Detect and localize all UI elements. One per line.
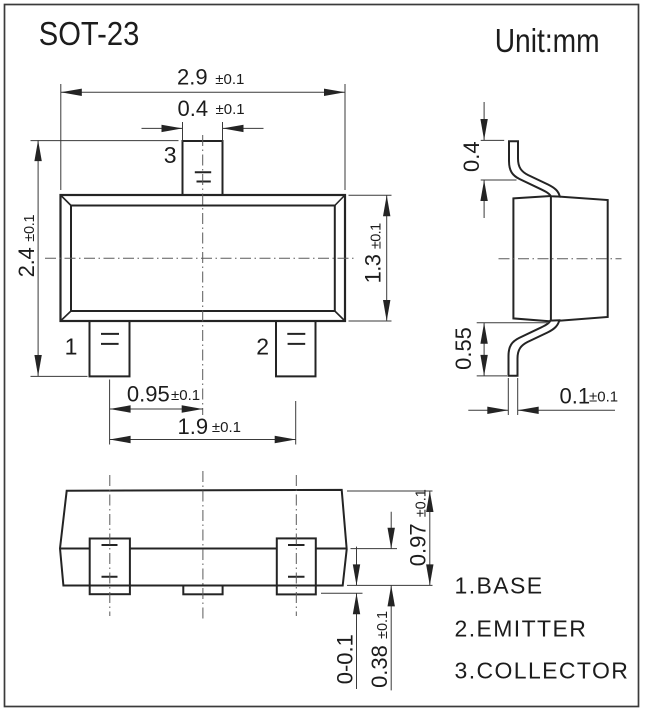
svg-text:2.9: 2.9 xyxy=(177,65,208,90)
svg-text:±0.1: ±0.1 xyxy=(171,387,200,404)
svg-text:0-0.1: 0-0.1 xyxy=(332,634,357,684)
svg-text:3: 3 xyxy=(164,142,177,168)
svg-text:2.EMITTER: 2.EMITTER xyxy=(455,616,588,642)
svg-text:±0.1: ±0.1 xyxy=(215,71,244,88)
svg-text:±0.1: ±0.1 xyxy=(216,101,245,118)
svg-text:0.95: 0.95 xyxy=(127,381,170,406)
svg-text:0.1: 0.1 xyxy=(560,383,591,408)
svg-text:0.4: 0.4 xyxy=(459,141,484,172)
svg-text:1.9: 1.9 xyxy=(178,414,209,439)
svg-text:0.55: 0.55 xyxy=(451,327,476,370)
svg-text:0.4: 0.4 xyxy=(178,96,209,121)
svg-text:3.COLLECTOR: 3.COLLECTOR xyxy=(455,657,630,683)
svg-text:Unit:mm: Unit:mm xyxy=(495,23,600,60)
svg-text:1.BASE: 1.BASE xyxy=(455,572,544,598)
svg-text:±0.1: ±0.1 xyxy=(589,389,618,406)
svg-text:1: 1 xyxy=(65,333,78,359)
svg-text:±0.1: ±0.1 xyxy=(212,419,241,436)
svg-text:SOT-23: SOT-23 xyxy=(39,16,140,53)
svg-text:2: 2 xyxy=(256,333,269,359)
